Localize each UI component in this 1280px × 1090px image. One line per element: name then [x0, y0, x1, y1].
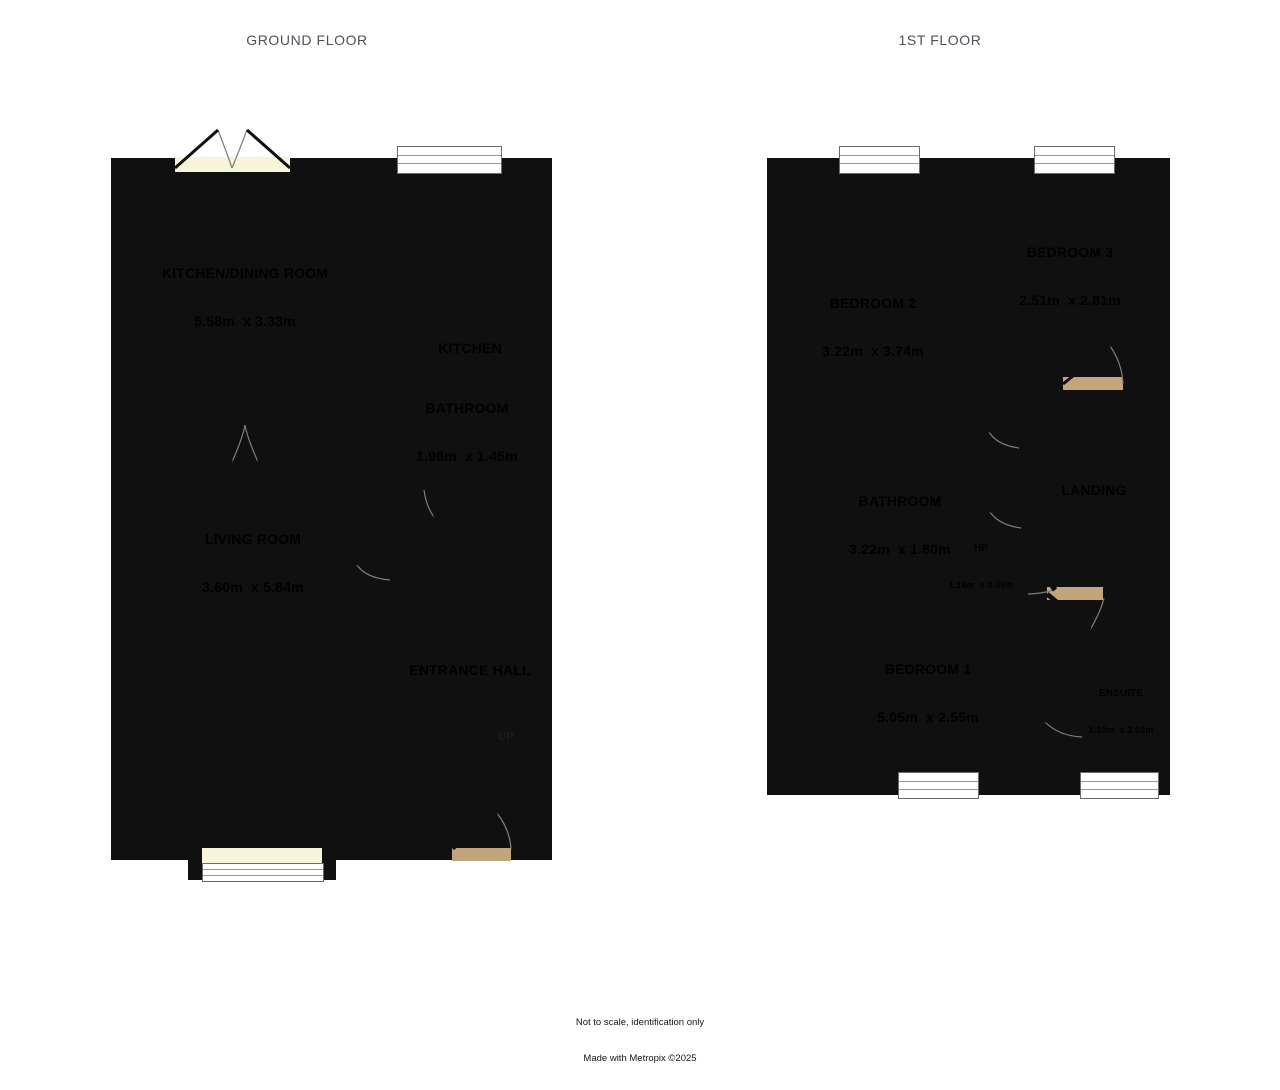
room-label-bedroom3: BEDROOM 3 2.51m x 2.81m	[1019, 212, 1121, 340]
room-label-bedroom2: BEDROOM 2 3.22m x 3.74m	[822, 263, 924, 391]
wall-segment	[303, 417, 402, 430]
wall-segment	[968, 171, 980, 390]
first-floor-title: 1ST FLOOR	[899, 32, 982, 48]
door-arc	[232, 130, 247, 168]
door-leaf	[1045, 681, 1081, 722]
door-leaf	[247, 130, 290, 168]
door-arc	[1045, 722, 1082, 737]
room-label-hot-press: HP 1.16m x 0.69m	[949, 519, 1014, 615]
room-name: BEDROOM 3	[1019, 244, 1121, 260]
door-leaf	[357, 523, 390, 565]
room-label-bedroom1: BEDROOM 1 5.05m x 2.55m	[877, 629, 979, 757]
stairs-up-label: UP	[498, 729, 514, 745]
door-leaf	[1063, 346, 1110, 384]
door-arc	[232, 425, 245, 462]
door-arc	[989, 432, 1019, 448]
room-dims: 2.51m x 2.81m	[1019, 292, 1121, 308]
window	[397, 146, 502, 174]
french-doors-swing	[170, 122, 295, 170]
room-label-landing: LANDING	[1061, 450, 1126, 530]
room-name: LANDING	[1061, 482, 1126, 498]
front-door-swing	[448, 806, 516, 854]
footer-disclaimer: Not to scale, identification only Made w…	[576, 993, 704, 1089]
room-dims: 5.05m x 2.55m	[877, 709, 979, 725]
door-leaf	[187, 422, 232, 462]
living-room-door-swing	[352, 518, 396, 584]
door-leaf	[990, 470, 1023, 512]
room-dims: 3.22m x 1.80m	[849, 541, 951, 557]
window	[898, 772, 979, 799]
door-arc	[218, 130, 232, 168]
window	[839, 146, 920, 174]
door-leaf	[989, 392, 1023, 432]
room-name: ENTRANCE HALL	[409, 662, 531, 678]
wall-segment	[1123, 377, 1170, 390]
room-name: LIVING ROOM	[202, 531, 304, 547]
wall-segment	[390, 580, 402, 848]
footer-line2: Made with Metropix ©2025	[576, 1053, 704, 1065]
double-doors-swing	[182, 419, 308, 469]
bay-window-jamb	[188, 848, 202, 880]
room-label-ground-bathroom: BATHROOM 1.98m x 1.45m	[416, 368, 518, 496]
room-name: BEDROOM 1	[877, 661, 979, 677]
wall-segment	[1103, 587, 1170, 600]
bay-window-jamb	[322, 848, 336, 880]
room-label-living-room: LIVING ROOM 3.60m x 5.84m	[202, 499, 304, 627]
wall-segment	[1075, 630, 1087, 681]
room-label-first-bathroom: BATHROOM 3.22m x 1.80m	[849, 461, 951, 589]
bay-window-floor	[202, 848, 322, 864]
ground-floor-title: GROUND FLOOR	[246, 32, 368, 48]
door-leaf	[1024, 546, 1055, 590]
door-leaf	[258, 422, 303, 462]
door-leaf	[453, 813, 497, 849]
door-leaf	[1047, 594, 1090, 630]
room-name: KITCHEN/DINING ROOM	[162, 265, 328, 281]
door-arc	[357, 565, 390, 580]
room-dims: 1.10m x 2.02m	[1089, 724, 1154, 736]
room-label-ensuite: ENSUITE 1.10m x 2.02m	[1089, 664, 1154, 760]
bedroom2-door-swing	[984, 387, 1028, 453]
footer-line1: Not to scale, identification only	[576, 1017, 704, 1029]
door-leaf	[175, 130, 218, 168]
door-arc	[497, 813, 511, 849]
bedroom3-door-swing	[1058, 341, 1128, 389]
room-dims: 1.98m x 1.45m	[416, 448, 518, 464]
window	[1080, 772, 1159, 799]
room-name: ENSUITE	[1089, 688, 1154, 700]
door-arc	[245, 425, 258, 462]
door-arc	[1090, 598, 1104, 630]
door-arc	[1110, 346, 1123, 384]
room-label-kitchen-dining: KITCHEN/DINING ROOM 5.58m x 3.33m	[162, 233, 328, 361]
ensuite-door-swing	[1040, 676, 1088, 742]
window	[1034, 146, 1115, 174]
room-dims: 3.60m x 5.84m	[202, 579, 304, 595]
room-name: KITCHEN	[438, 340, 502, 356]
room-label-entrance-hall: ENTRANCE HALL	[409, 630, 531, 710]
room-name: BEDROOM 2	[822, 295, 924, 311]
bedroom1-door-swing	[1042, 589, 1110, 635]
wall-segment	[124, 417, 187, 430]
room-dims: 5.58m x 3.33m	[162, 313, 328, 329]
wall-segment	[780, 448, 1017, 460]
bay-window	[202, 863, 324, 882]
room-dims: 3.22m x 3.74m	[822, 343, 924, 359]
floorplan-canvas: GROUND FLOOR 1ST FLOOR	[0, 0, 1280, 1090]
room-name: BATHROOM	[416, 400, 518, 416]
room-name: BATHROOM	[849, 493, 951, 509]
room-dims: 1.16m x 0.69m	[949, 579, 1014, 591]
room-name: HP	[949, 543, 1014, 555]
